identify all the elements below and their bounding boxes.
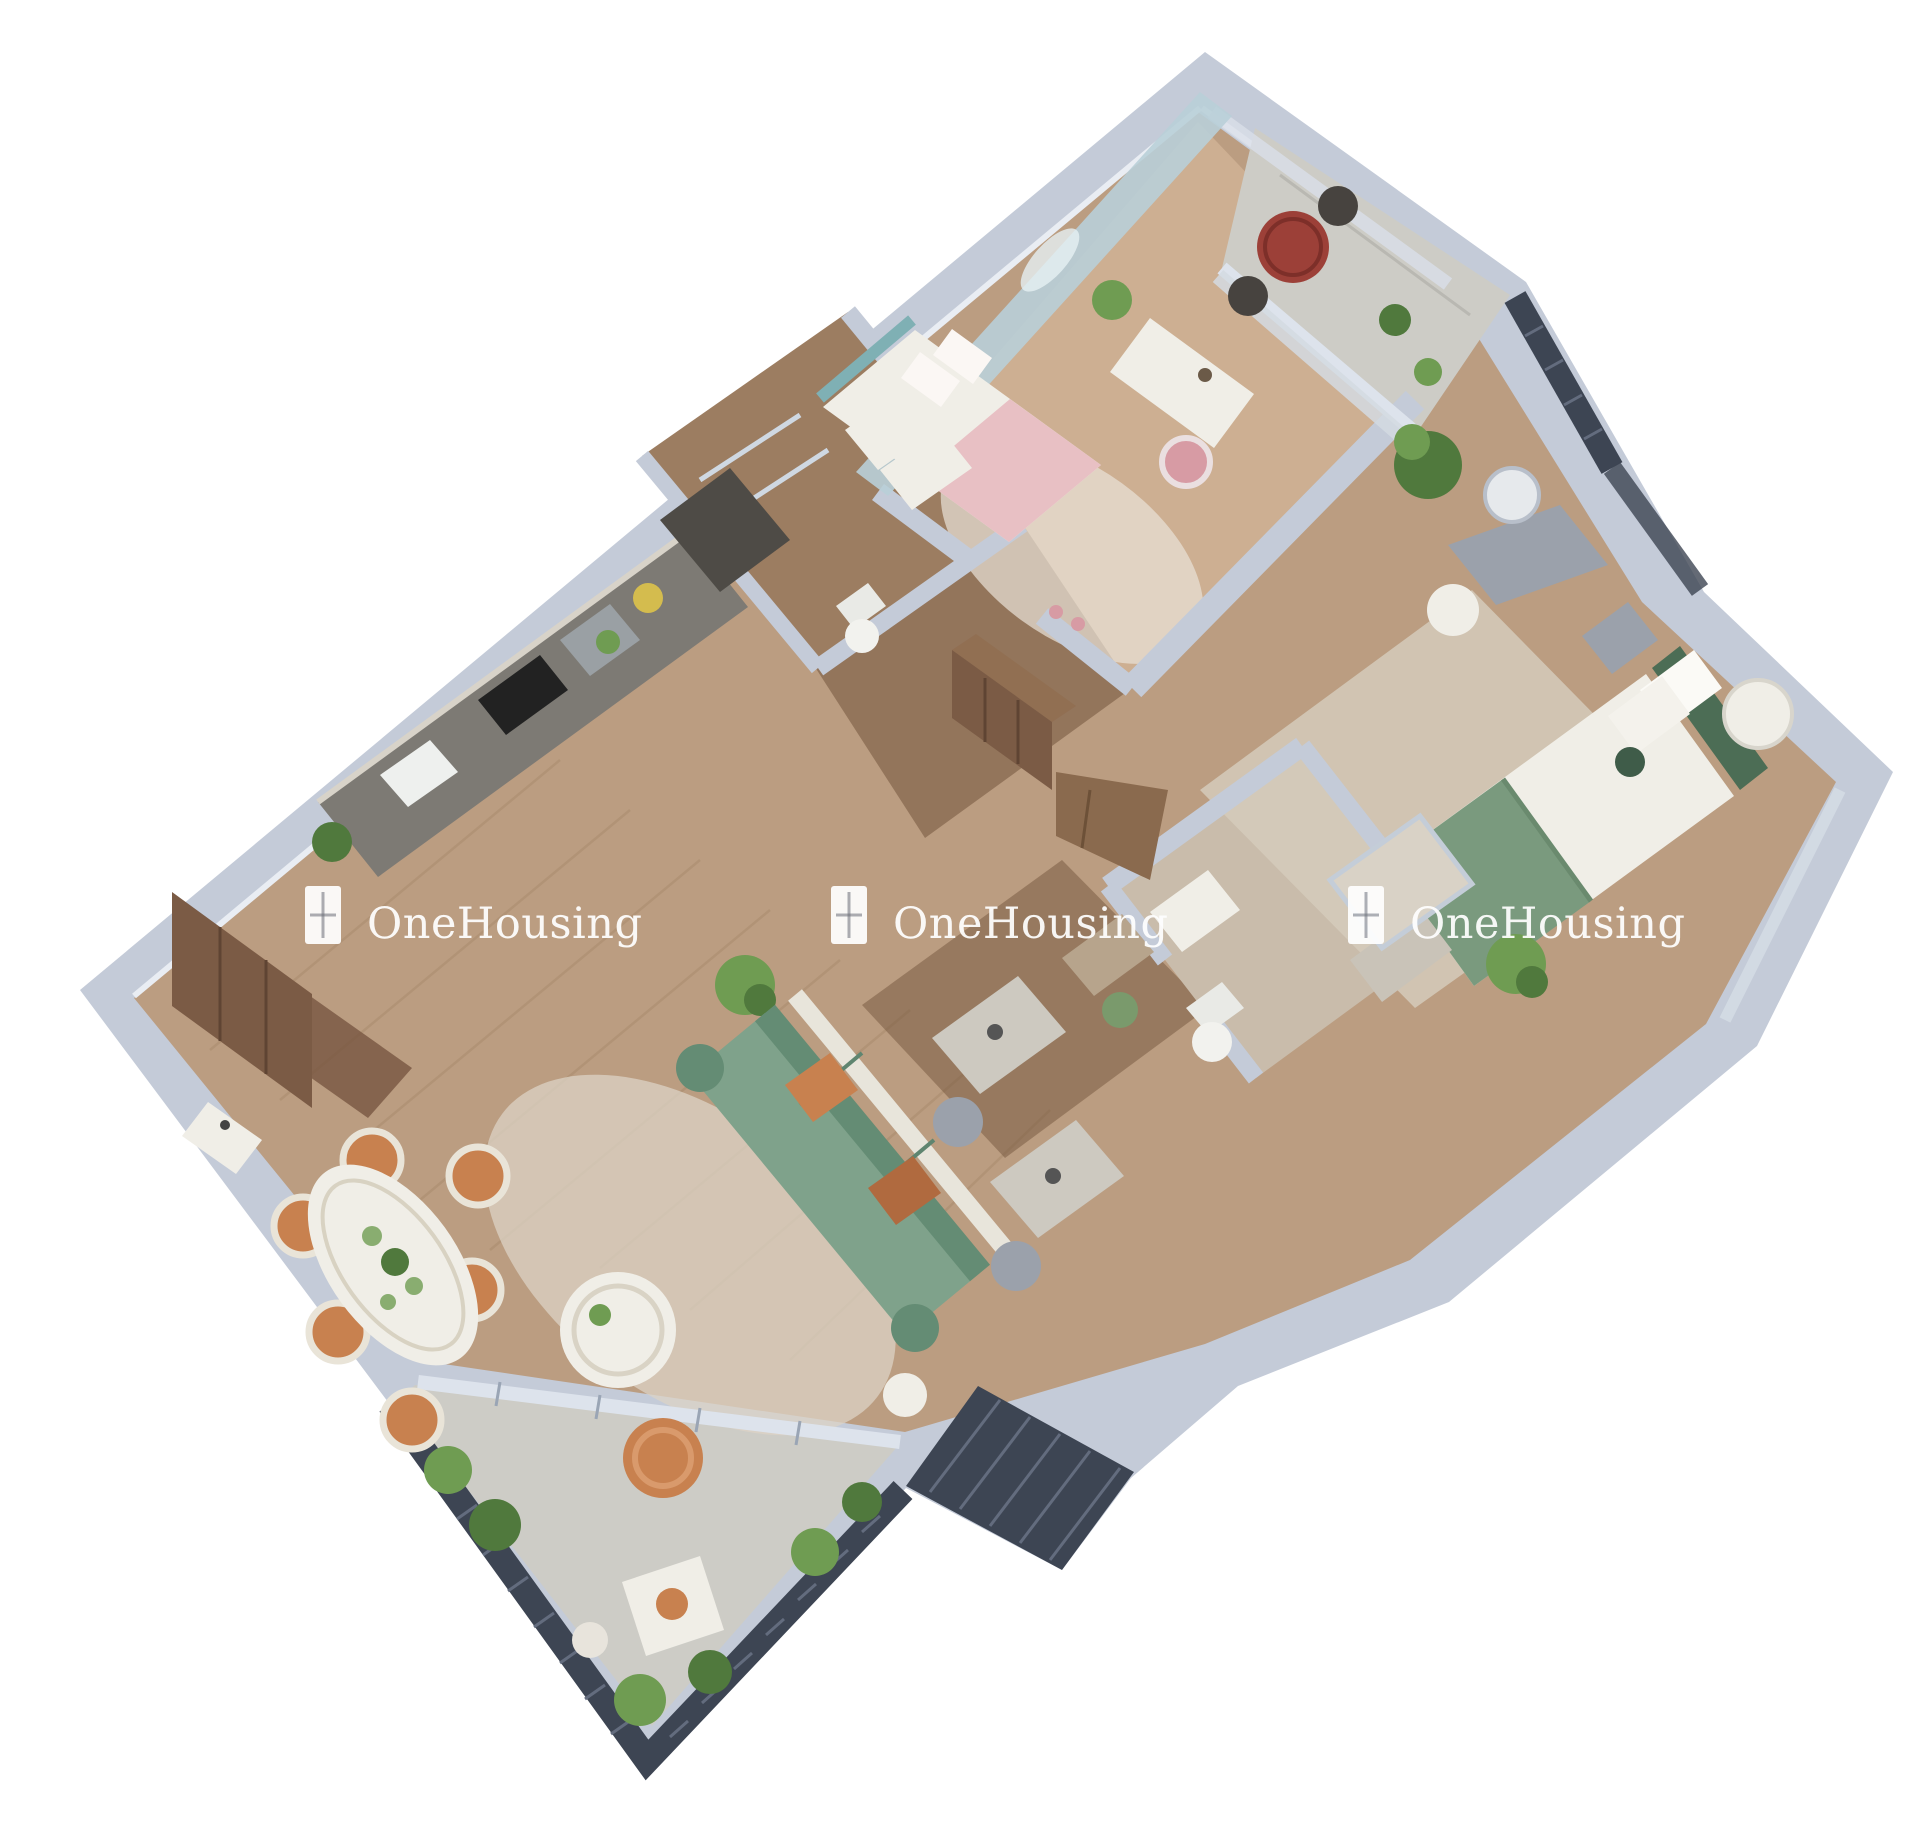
sofa-armrest-2 [891,1304,939,1352]
balcony2-plant-1 [424,1446,472,1494]
floor-plan-canvas: OneHousing OneHousing OneHousing [0,0,1921,1836]
slipper-2 [1071,617,1085,631]
bath2-toilet [1192,1022,1232,1062]
watermark-text: OneHousing [1410,899,1686,949]
desk-item [1198,368,1212,382]
balcony2-plant-6 [842,1482,882,1522]
balcony-plant-2 [1414,358,1442,386]
desk2-monitor [1045,1168,1061,1184]
table-floral-3 [380,1294,396,1310]
slipper-1 [1049,605,1063,619]
balcony-table [1257,211,1329,283]
entry-plant [312,822,352,862]
desk1-monitor [987,1024,1003,1040]
hanging-chair [1724,680,1792,748]
kids-plant [1092,280,1132,320]
floor-plan-render: OneHousing OneHousing OneHousing [0,0,1921,1836]
bath1-toilet [845,619,879,653]
table-floral-2 [405,1277,423,1295]
coffee-table [560,1272,676,1388]
watermark-text: OneHousing [893,899,1169,949]
sofa-armrest-1 [676,1044,724,1092]
study-chair-2 [991,1241,1041,1291]
kitchen-plant [596,630,620,654]
balcony2-plant-2 [469,1499,521,1551]
balcony2-plant-3 [614,1674,666,1726]
vanity-stool [1427,584,1479,636]
kitchen-flowers [633,583,663,613]
watermark-text: OneHousing [367,899,643,949]
entry-faucet [220,1120,230,1130]
balcony-side-table [572,1622,608,1658]
table-floral-1 [362,1226,382,1246]
balcony-chair-2 [1318,186,1358,226]
laundry-basket [1102,992,1138,1028]
vanity-mirror [1485,468,1539,522]
balcony2-plant-5 [791,1528,839,1576]
balcony-plant-1 [1379,304,1411,336]
master-plant-dark [1516,966,1548,998]
coffee-table-plant [589,1304,611,1326]
table-centerpiece [381,1248,409,1276]
lounge-cushion [656,1588,688,1620]
study-chair-1 [933,1097,983,1147]
balcony-chair-1 [1228,276,1268,316]
master-corner-plant-light [1394,424,1430,460]
master-throw-pillow [1615,747,1645,777]
side-table [883,1373,927,1417]
balcony2-plant-4 [688,1650,732,1694]
